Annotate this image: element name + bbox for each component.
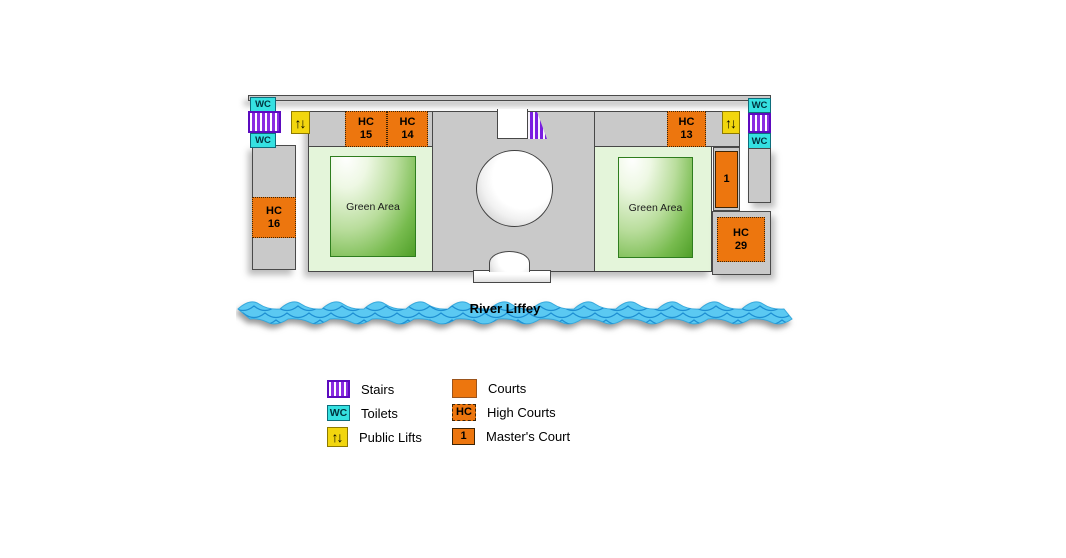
court-number: 16 <box>268 218 280 231</box>
south-entrance-dome <box>489 251 530 272</box>
quay-strip <box>248 95 771 101</box>
legend-item-stairs: Stairs <box>327 379 422 399</box>
toilets-wc: WC <box>748 98 771 113</box>
masters-badge: 1 <box>460 430 466 443</box>
legend-label: Courts <box>488 381 526 396</box>
legend-label: Master's Court <box>486 429 570 444</box>
lift-arrows: ↑↓ <box>332 429 342 445</box>
court-label: HC <box>733 227 749 240</box>
wc-label: WC <box>330 407 348 419</box>
court-hc14: HC 14 <box>387 111 428 147</box>
legend-left-column: Stairs WC Toilets ↑↓ Public Lifts <box>327 379 422 447</box>
legend-label: Public Lifts <box>359 430 422 445</box>
legend-label: Toilets <box>361 406 398 421</box>
toilets-wc: WC <box>250 97 276 112</box>
green-area-east: Green Area <box>618 157 693 258</box>
round-hall-circle <box>476 150 553 227</box>
legend-right-column: Courts HC High Courts 1 Master's Court <box>452 378 570 446</box>
public-lift-icon: ↑↓ <box>291 111 310 134</box>
legend-label: Stairs <box>361 382 394 397</box>
court-hc13: HC 13 <box>667 111 706 147</box>
toilets-wc: WC <box>748 133 771 149</box>
green-area-label: Green Area <box>629 202 683 214</box>
court-label: HC <box>679 116 695 129</box>
courts-icon <box>452 379 477 398</box>
toilets-wc-icon: WC <box>327 405 350 421</box>
stairs-icon <box>248 111 281 133</box>
court-hc16: HC 16 <box>252 197 296 238</box>
court-label: HC <box>266 205 282 218</box>
legend-label: High Courts <box>487 405 556 420</box>
public-lift-icon: ↑↓ <box>722 111 740 134</box>
high-courts-icon: HC <box>452 404 476 421</box>
green-area-label: Green Area <box>346 201 400 213</box>
entrance-notch <box>497 109 528 139</box>
public-lift-icon: ↑↓ <box>327 427 348 447</box>
court-masters: 1 <box>715 151 738 208</box>
east-corridor <box>748 148 771 203</box>
court-hc15: HC 15 <box>345 111 387 147</box>
legend-item-courts: Courts <box>452 378 570 398</box>
stairs-icon <box>327 380 350 398</box>
stairs-icon <box>748 113 771 133</box>
toilets-wc: WC <box>250 133 276 148</box>
court-number: 13 <box>680 129 692 142</box>
wc-label: WC <box>255 135 271 146</box>
wc-label: WC <box>752 136 768 147</box>
courts-floor-plan: Green Area Green Area HC 15 HC 14 HC 13 … <box>0 0 1066 558</box>
court-number: 1 <box>723 173 729 186</box>
court-number: 14 <box>401 129 413 142</box>
legend-item-high-courts: HC High Courts <box>452 402 570 422</box>
hc-badge: HC <box>456 406 472 419</box>
legend-item-toilets: WC Toilets <box>327 403 422 423</box>
court-number: 29 <box>735 240 747 253</box>
river-label: River Liffey <box>420 301 590 316</box>
court-label: HC <box>358 116 374 129</box>
court-hc29: HC 29 <box>717 217 765 262</box>
wc-label: WC <box>255 99 271 110</box>
lift-arrows: ↑↓ <box>725 115 735 131</box>
masters-court-icon: 1 <box>452 428 475 445</box>
lift-arrows: ↑↓ <box>295 115 305 131</box>
court-number: 15 <box>360 129 372 142</box>
green-area-west: Green Area <box>330 156 416 257</box>
legend-item-public-lifts: ↑↓ Public Lifts <box>327 427 422 447</box>
wc-label: WC <box>752 100 768 111</box>
legend-item-masters-court: 1 Master's Court <box>452 426 570 446</box>
court-label: HC <box>400 116 416 129</box>
